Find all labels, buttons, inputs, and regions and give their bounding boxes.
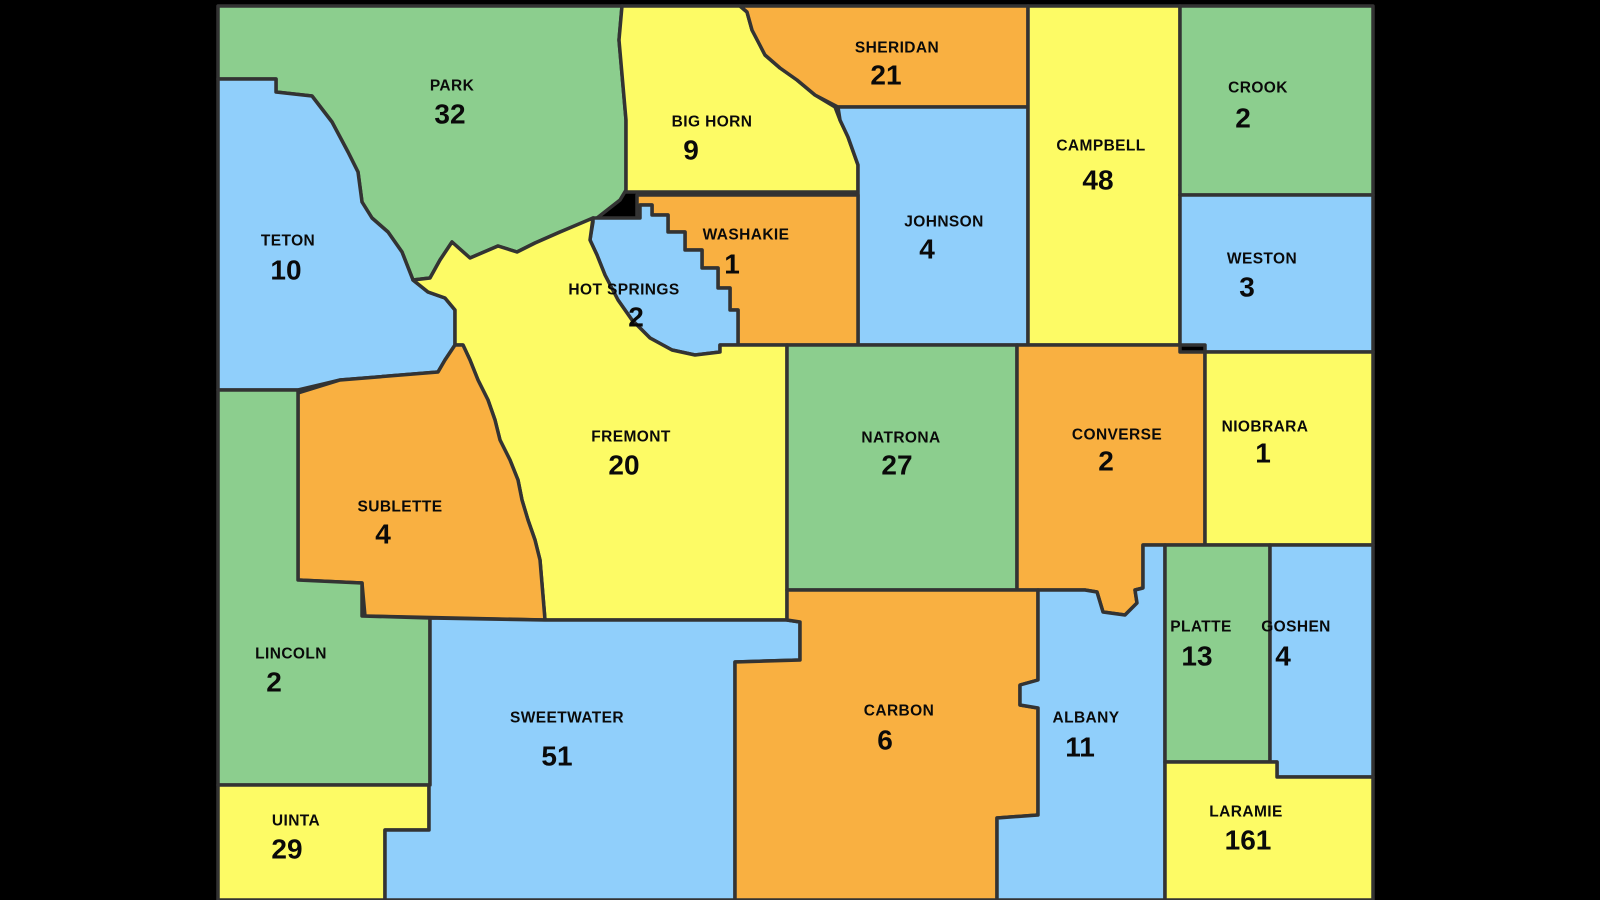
county-label-lincoln: LINCOLN xyxy=(255,646,327,663)
county-region-crook xyxy=(1180,6,1373,195)
county-value-weston: 3 xyxy=(1239,272,1255,303)
county-region-weston xyxy=(1180,195,1373,352)
county-value-hot-springs: 2 xyxy=(628,302,644,333)
county-label-niobrara: NIOBRARA xyxy=(1222,419,1309,436)
county-value-fremont: 20 xyxy=(608,450,639,481)
wyoming-county-map: PARK32TETON10BIG HORN9SHERIDAN21JOHNSON4… xyxy=(0,0,1600,900)
county-label-converse: CONVERSE xyxy=(1072,427,1162,444)
county-label-natrona: NATRONA xyxy=(861,430,940,447)
county-value-platte: 13 xyxy=(1181,641,1212,672)
county-value-sublette: 4 xyxy=(375,519,391,550)
county-label-crook: CROOK xyxy=(1228,80,1288,97)
county-label-sublette: SUBLETTE xyxy=(357,499,442,516)
county-value-washakie: 1 xyxy=(724,249,740,280)
county-value-laramie: 161 xyxy=(1225,825,1272,856)
county-label-sheridan: SHERIDAN xyxy=(855,40,939,57)
county-value-sheridan: 21 xyxy=(870,60,901,91)
county-label-carbon: CARBON xyxy=(864,703,934,720)
county-value-big-horn: 9 xyxy=(683,135,699,166)
county-value-natrona: 27 xyxy=(881,450,912,481)
county-value-carbon: 6 xyxy=(877,725,893,756)
county-value-campbell: 48 xyxy=(1082,165,1113,196)
county-label-albany: ALBANY xyxy=(1053,710,1120,727)
county-value-uinta: 29 xyxy=(271,834,302,865)
county-region-niobrara xyxy=(1205,352,1373,545)
county-label-teton: TETON xyxy=(261,233,315,250)
county-value-johnson: 4 xyxy=(919,234,935,265)
county-value-niobrara: 1 xyxy=(1255,438,1271,469)
county-value-crook: 2 xyxy=(1235,103,1251,134)
county-label-goshen: GOSHEN xyxy=(1261,619,1331,636)
county-value-lincoln: 2 xyxy=(266,667,282,698)
county-label-johnson: JOHNSON xyxy=(904,214,983,231)
county-label-park: PARK xyxy=(430,78,475,95)
county-label-weston: WESTON xyxy=(1227,251,1297,268)
county-value-teton: 10 xyxy=(270,255,301,286)
county-label-laramie: LARAMIE xyxy=(1209,804,1282,821)
county-label-uinta: UINTA xyxy=(272,813,320,830)
county-label-sweetwater: SWEETWATER xyxy=(510,710,624,727)
county-value-park: 32 xyxy=(434,99,465,130)
county-value-converse: 2 xyxy=(1098,446,1114,477)
county-value-sweetwater: 51 xyxy=(541,741,572,772)
county-label-platte: PLATTE xyxy=(1170,619,1232,636)
county-label-big-horn: BIG HORN xyxy=(672,114,753,131)
county-value-albany: 11 xyxy=(1065,732,1095,763)
county-label-fremont: FREMONT xyxy=(591,429,671,446)
county-label-campbell: CAMPBELL xyxy=(1056,138,1145,155)
county-label-hot-springs: HOT SPRINGS xyxy=(568,282,679,299)
map-stage: PARK32TETON10BIG HORN9SHERIDAN21JOHNSON4… xyxy=(0,0,1600,900)
county-label-washakie: WASHAKIE xyxy=(703,227,790,244)
county-value-goshen: 4 xyxy=(1275,641,1291,672)
